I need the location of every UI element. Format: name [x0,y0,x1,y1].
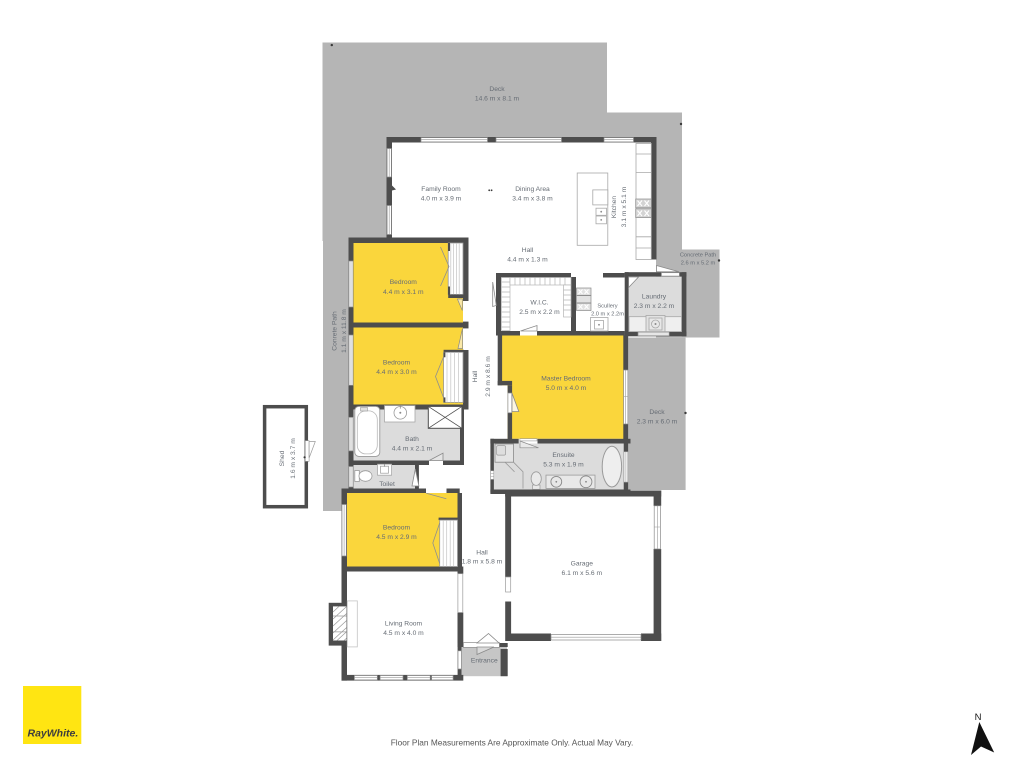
svg-text:Bedroom: Bedroom [383,359,411,366]
svg-text:2.0 m x 2.2m: 2.0 m x 2.2m [591,312,624,318]
svg-text:Floor Plan Measurements Are Ap: Floor Plan Measurements Are Approximate … [391,738,634,748]
svg-text:Living Room: Living Room [385,620,423,627]
svg-text:4.5 m x 2.9 m: 4.5 m x 2.9 m [376,534,417,541]
svg-text:2.6 m x 5.2 m: 2.6 m x 5.2 m [681,261,716,267]
svg-text:4.0 m x 3.9 m: 4.0 m x 3.9 m [421,196,462,203]
svg-text:3.4 m x 3.8 m: 3.4 m x 3.8 m [512,196,553,203]
svg-text:N: N [975,712,982,723]
svg-text:1.8 m x 5.8 m: 1.8 m x 5.8 m [462,559,503,566]
svg-text:2.3 m x 2.2 m: 2.3 m x 2.2 m [634,303,675,310]
svg-text:Hall: Hall [476,549,488,556]
svg-text:5.3 m x 1.9 m: 5.3 m x 1.9 m [543,462,584,469]
svg-text:Entrance: Entrance [471,658,498,665]
svg-text:Laundry: Laundry [642,294,667,301]
svg-text:RayWhite.: RayWhite. [28,728,79,740]
svg-text:Bath: Bath [405,436,419,443]
svg-text:Deck: Deck [649,409,665,416]
svg-text:4.4 m x 3.1 m: 4.4 m x 3.1 m [383,289,424,296]
svg-text:4.5 m x 4.0 m: 4.5 m x 4.0 m [383,630,424,637]
svg-text:2.9 m x 8.6 m: 2.9 m x 8.6 m [485,356,492,397]
svg-text:Bedroom: Bedroom [390,279,418,286]
svg-text:Scullery: Scullery [597,304,617,310]
svg-text:W.I.C.: W.I.C. [530,300,548,307]
svg-text:1.6 m x 3.7 m: 1.6 m x 3.7 m [290,438,297,479]
svg-text:Family Room: Family Room [421,186,461,193]
svg-text:Ensuite: Ensuite [552,452,575,459]
svg-text:14.6 m x 8.1 m: 14.6 m x 8.1 m [475,96,520,103]
svg-text:1.1 m x 11.8 m: 1.1 m x 11.8 m [341,309,348,353]
svg-text:Bedroom: Bedroom [383,525,411,532]
svg-text:Conrete Path: Conrete Path [332,311,339,351]
svg-text:Shed: Shed [279,450,286,466]
svg-text:Deck: Deck [489,86,505,93]
svg-text:Toilet: Toilet [379,481,395,488]
svg-text:Hall: Hall [472,370,479,382]
svg-text:Dining Area: Dining Area [515,186,550,193]
svg-text:3.1 m x 5.1 m: 3.1 m x 5.1 m [621,186,628,227]
svg-text:2.3 m x 6.0 m: 2.3 m x 6.0 m [637,419,678,426]
svg-text:Concrete Path: Concrete Path [680,253,716,259]
svg-text:Master Bedroom: Master Bedroom [541,375,591,382]
svg-text:6.1 m x 5.6 m: 6.1 m x 5.6 m [562,570,603,577]
svg-text:4.4 m x 1.3 m: 4.4 m x 1.3 m [507,257,548,264]
svg-text:5.0 m x 4.0 m: 5.0 m x 4.0 m [546,385,587,392]
svg-text:Hall: Hall [522,247,534,254]
svg-text:Kitchen: Kitchen [611,196,618,219]
svg-text:4.4 m x 2.1 m: 4.4 m x 2.1 m [392,445,433,452]
svg-text:4.4 m x 3.0 m: 4.4 m x 3.0 m [376,369,417,376]
svg-text:2.5 m x 2.2 m: 2.5 m x 2.2 m [519,309,560,316]
svg-text:Garage: Garage [571,560,594,567]
